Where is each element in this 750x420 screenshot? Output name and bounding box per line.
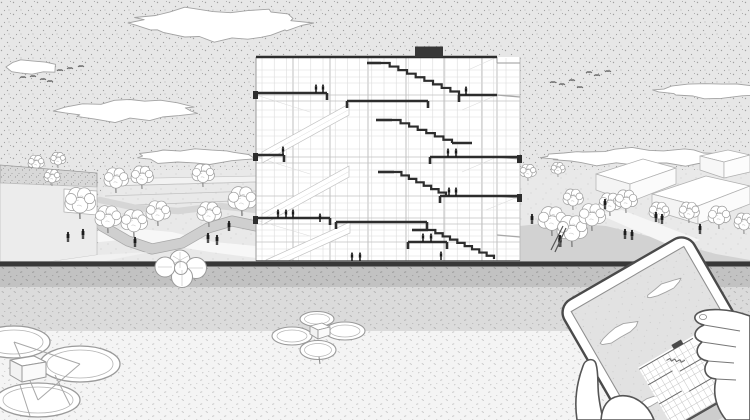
person-torso (624, 231, 627, 235)
tree-canopy (96, 211, 105, 220)
person-head (661, 214, 663, 216)
person-leg (322, 90, 323, 93)
person-leg (700, 230, 701, 234)
person-leg (455, 193, 456, 196)
bird (569, 79, 575, 81)
tree-canopy (54, 172, 59, 177)
person-head (604, 199, 606, 201)
person-head (447, 148, 449, 150)
tree-canopy (560, 165, 565, 170)
person-leg (655, 218, 656, 222)
tree-canopy (551, 165, 556, 170)
tree-canopy (122, 215, 131, 224)
tree-canopy (51, 155, 56, 160)
architectural-illustration (0, 0, 750, 420)
tree-canopy (192, 168, 200, 176)
person-leg (624, 235, 625, 239)
bird (47, 80, 53, 82)
person-leg (456, 193, 457, 196)
person-leg (286, 215, 287, 218)
bird (550, 81, 556, 83)
person-leg (67, 238, 68, 242)
person-leg (449, 193, 450, 196)
person-leg (448, 193, 449, 196)
person-head (430, 233, 432, 235)
person-head (228, 221, 230, 223)
tree-canopy (520, 167, 526, 173)
person-torso (322, 86, 324, 90)
tree-canopy (60, 155, 65, 160)
person-leg (423, 239, 424, 242)
tree-canopy (576, 193, 583, 200)
person-torso (455, 150, 457, 154)
building-section (253, 47, 522, 272)
person-leg (560, 242, 561, 247)
tree-canopy (120, 173, 128, 181)
tree-canopy (112, 211, 121, 220)
bird (586, 71, 592, 73)
slab-nubs (253, 216, 258, 224)
tree-canopy (246, 192, 256, 202)
person-head (207, 233, 209, 235)
person-torso (292, 211, 294, 215)
person-head (82, 229, 84, 231)
tree-canopy (146, 206, 155, 215)
person-leg (285, 215, 286, 218)
person-head (319, 213, 321, 215)
person-leg (656, 218, 657, 222)
person-torso (282, 148, 284, 152)
tree-canopy (138, 215, 147, 224)
person-head (216, 235, 218, 237)
person-leg (217, 241, 218, 245)
person-torso (661, 216, 664, 220)
person-head (455, 148, 457, 150)
person-leg (455, 154, 456, 157)
tree-canopy (662, 206, 669, 213)
person-head (559, 235, 562, 238)
person-leg (661, 220, 662, 224)
person-torso (455, 189, 457, 193)
bird (559, 83, 565, 85)
person-leg (456, 154, 457, 157)
person-leg (699, 230, 700, 234)
tree-canopy (629, 194, 636, 201)
tree-canopy (66, 194, 77, 205)
person-leg (208, 239, 209, 243)
person-leg (292, 215, 293, 218)
person-head (285, 209, 287, 211)
bird (594, 74, 600, 76)
person-torso (351, 254, 353, 258)
person-leg (316, 90, 317, 93)
person-head (655, 212, 657, 214)
person-head (422, 233, 424, 235)
tree-canopy (580, 209, 589, 218)
person-head (359, 252, 361, 254)
person-torso (285, 211, 287, 215)
tree-canopy (104, 173, 113, 182)
tree-canopy (679, 206, 686, 213)
person-leg (319, 219, 320, 222)
person-head (624, 229, 626, 231)
person-head (322, 84, 324, 86)
person-leg (352, 258, 353, 261)
person-torso (277, 211, 279, 215)
person-head (67, 232, 69, 234)
person-leg (82, 235, 83, 239)
slab-nubs (253, 153, 258, 161)
person-torso (216, 237, 219, 241)
person-torso (207, 235, 210, 239)
person-leg (229, 227, 230, 231)
person-torso (699, 226, 702, 230)
bird (57, 69, 63, 71)
person-torso (531, 216, 534, 220)
tree-canopy (596, 209, 605, 218)
person-torso (359, 254, 361, 258)
tree-canopy (213, 207, 221, 215)
bird (67, 67, 73, 69)
slab-nubs (517, 194, 522, 202)
bird (577, 86, 583, 88)
person-torso (631, 232, 634, 236)
person-leg (323, 90, 324, 93)
tree-canopy (563, 193, 570, 200)
person-leg (135, 243, 136, 247)
person-head (315, 84, 317, 86)
bird (20, 76, 26, 78)
person-torso (228, 223, 231, 227)
person-head (465, 86, 467, 88)
tree-canopy (38, 158, 43, 163)
illustration-stage (0, 0, 750, 420)
person-leg (662, 220, 663, 224)
person-leg (207, 239, 208, 243)
person-leg (320, 219, 321, 222)
grid-minor (262, 58, 506, 261)
person-leg (604, 205, 605, 209)
person-leg (359, 258, 360, 261)
person-head (455, 187, 457, 189)
tree-canopy (539, 212, 549, 222)
person-leg (465, 92, 466, 95)
person-torso (440, 253, 442, 257)
person-leg (216, 241, 217, 245)
person-head (282, 146, 284, 148)
person-leg (625, 235, 626, 239)
person-torso (422, 235, 424, 239)
tree-canopy (734, 217, 741, 224)
tree-canopy (197, 207, 206, 216)
tree-canopy (722, 210, 729, 217)
person-leg (228, 227, 229, 231)
person-leg (441, 257, 442, 260)
tree-canopy (692, 206, 699, 213)
tree-canopy (131, 170, 139, 178)
building-body (256, 57, 520, 262)
person-head (277, 209, 279, 211)
person-leg (605, 205, 606, 209)
person-torso (134, 239, 137, 243)
tree-canopy (28, 158, 34, 164)
person-leg (278, 215, 279, 218)
slab-nubs (253, 91, 258, 99)
person-leg (531, 220, 532, 224)
tree-canopy (44, 172, 50, 178)
bird (78, 65, 84, 67)
person-torso (315, 86, 317, 90)
tree-canopy (530, 167, 535, 172)
bird (605, 70, 611, 72)
person-leg (283, 152, 284, 155)
person-leg (68, 238, 69, 242)
tree-canopy (615, 194, 623, 202)
rooftop-box (415, 47, 443, 58)
person-torso (82, 231, 85, 235)
tree-canopy (206, 168, 213, 175)
person-leg (422, 239, 423, 242)
person-head (631, 230, 633, 232)
person-leg (83, 235, 84, 239)
person-leg (447, 154, 448, 157)
person-head (292, 209, 294, 211)
person-leg (448, 154, 449, 157)
bird (40, 78, 46, 80)
person-torso (448, 189, 450, 193)
person-leg (360, 258, 361, 261)
person-leg (282, 152, 283, 155)
person-head (448, 187, 450, 189)
tree-canopy (162, 206, 170, 214)
tree-canopy (145, 170, 152, 177)
bird (30, 75, 36, 77)
person-leg (631, 236, 632, 240)
person-torso (604, 201, 607, 205)
tree-canopy (229, 192, 239, 202)
person-head (699, 224, 701, 226)
person-leg (466, 92, 467, 95)
person-head (134, 237, 136, 239)
person-torso (447, 150, 449, 154)
person-leg (315, 90, 316, 93)
person-leg (532, 220, 533, 224)
person-torso (655, 214, 658, 218)
person-torso (319, 215, 321, 219)
person-leg (351, 258, 352, 261)
tree-canopy (708, 210, 716, 218)
tree-canopy (85, 194, 95, 204)
person-torso (430, 235, 432, 239)
person-leg (293, 215, 294, 218)
person-leg (277, 215, 278, 218)
person-head (440, 251, 442, 253)
person-head (351, 252, 353, 254)
person-leg (431, 239, 432, 242)
person-head (531, 214, 533, 216)
person-leg (134, 243, 135, 247)
person-torso (465, 88, 467, 92)
person-leg (632, 236, 633, 240)
slab-nubs (517, 155, 522, 163)
person-torso (67, 234, 70, 238)
person-leg (440, 257, 441, 260)
person-leg (430, 239, 431, 242)
